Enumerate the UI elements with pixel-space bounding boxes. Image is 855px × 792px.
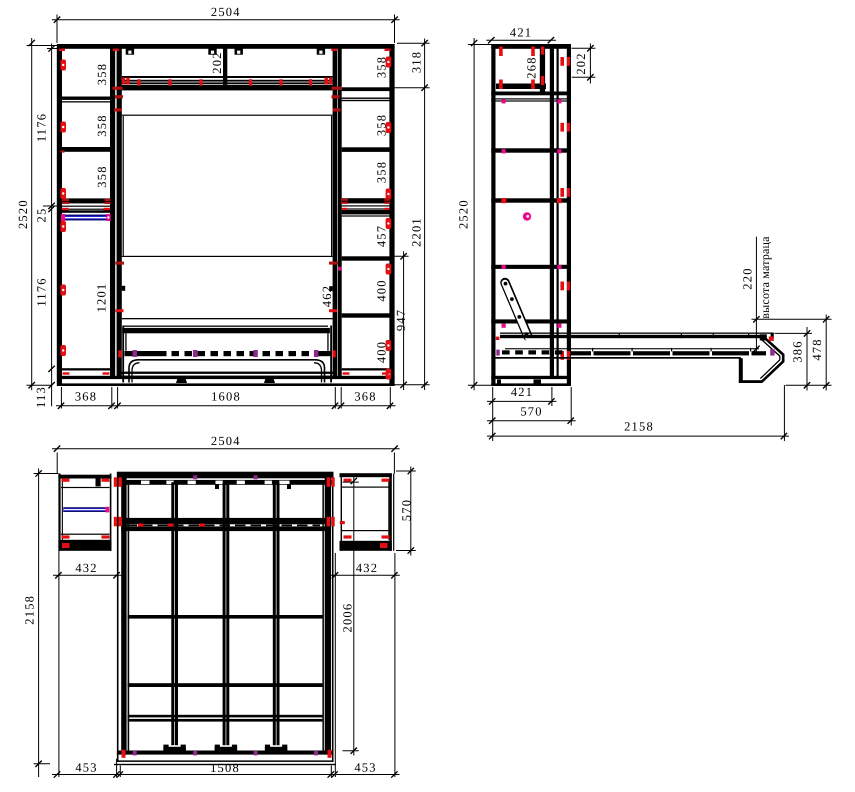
svg-text:421: 421: [511, 385, 533, 399]
svg-text:358: 358: [95, 63, 109, 85]
svg-text:400: 400: [374, 279, 388, 301]
svg-text:478: 478: [810, 338, 824, 360]
svg-text:2504: 2504: [211, 434, 241, 448]
svg-text:570: 570: [400, 499, 414, 521]
svg-text:202: 202: [574, 52, 588, 74]
svg-text:2504: 2504: [211, 5, 241, 19]
svg-text:947: 947: [394, 309, 408, 331]
svg-text:2520: 2520: [457, 199, 471, 229]
svg-text:358: 358: [95, 114, 109, 136]
svg-text:2158: 2158: [624, 420, 654, 434]
svg-text:570: 570: [520, 404, 542, 418]
svg-text:318: 318: [409, 51, 423, 73]
svg-text:368: 368: [354, 390, 376, 404]
svg-text:453: 453: [75, 761, 97, 775]
svg-text:453: 453: [354, 761, 376, 775]
svg-text:1608: 1608: [211, 390, 241, 404]
svg-text:268: 268: [525, 56, 539, 78]
svg-text:358: 358: [374, 161, 388, 183]
svg-text:113: 113: [34, 386, 48, 408]
svg-text:2158: 2158: [23, 595, 37, 625]
svg-text:2006: 2006: [341, 603, 355, 633]
svg-text:421: 421: [510, 26, 532, 40]
svg-text:386: 386: [790, 340, 804, 362]
svg-text:1176: 1176: [35, 277, 49, 306]
svg-text:2201: 2201: [409, 217, 423, 247]
svg-text:432: 432: [356, 561, 378, 575]
svg-text:25: 25: [35, 208, 49, 223]
svg-text:358: 358: [95, 165, 109, 187]
svg-text:высота матраца: высота матраца: [758, 236, 772, 319]
svg-text:220: 220: [741, 267, 755, 289]
svg-text:368: 368: [75, 390, 97, 404]
svg-text:1508: 1508: [210, 761, 240, 775]
svg-text:432: 432: [75, 561, 97, 575]
svg-text:2520: 2520: [16, 199, 30, 229]
svg-text:1201: 1201: [95, 283, 109, 313]
svg-text:1176: 1176: [35, 113, 49, 142]
